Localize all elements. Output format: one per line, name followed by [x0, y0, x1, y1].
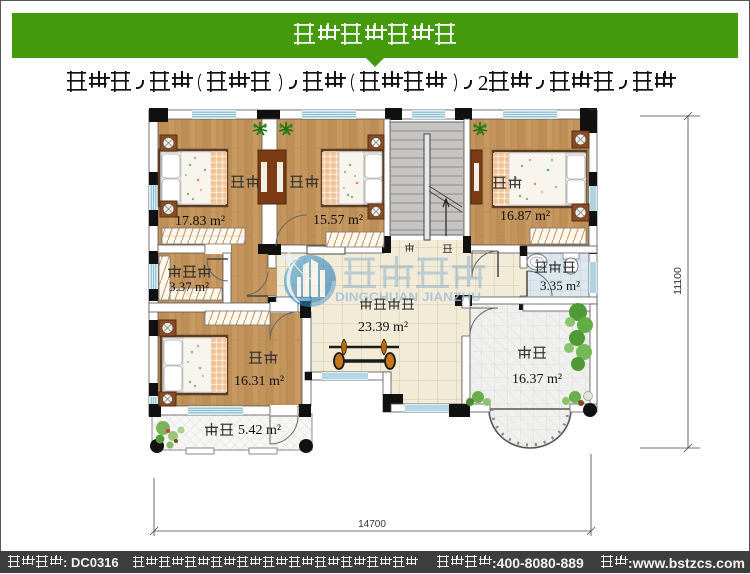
- svg-text:14700: 14700: [358, 519, 386, 530]
- svg-text:3.35 m²: 3.35 m²: [540, 278, 580, 293]
- svg-text:17.83 m²: 17.83 m²: [175, 214, 225, 229]
- svg-text:16.87 m²: 16.87 m²: [500, 209, 550, 224]
- svg-text:23.39 m²: 23.39 m²: [358, 320, 408, 335]
- svg-text:11100: 11100: [672, 267, 684, 295]
- svg-text:16.31 m²: 16.31 m²: [234, 374, 284, 389]
- svg-text:5.42 m²: 5.42 m²: [238, 423, 281, 438]
- svg-text:3.37 m²: 3.37 m²: [169, 279, 209, 294]
- svg-text:15.57 m²: 15.57 m²: [313, 213, 363, 228]
- svg-text:16.37 m²: 16.37 m²: [512, 372, 562, 387]
- svg-text:DINGCHUAN JIANZHU: DINGCHUAN JIANZHU: [335, 290, 481, 304]
